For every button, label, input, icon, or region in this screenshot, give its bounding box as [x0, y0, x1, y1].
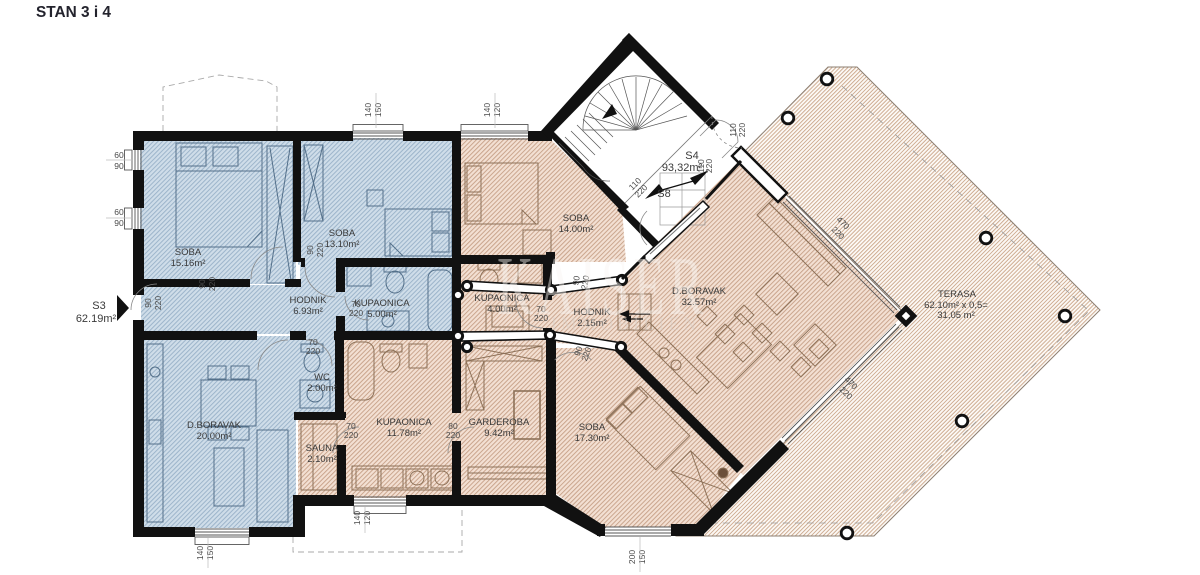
svg-text:GARDEROBA: GARDEROBA	[469, 417, 530, 428]
svg-text:STAN 3 i 4: STAN 3 i 4	[36, 4, 111, 21]
svg-text:62.19m²: 62.19m²	[76, 313, 117, 325]
svg-text:15.16m²: 15.16m²	[171, 258, 206, 269]
svg-text:90: 90	[197, 279, 207, 289]
svg-text:220: 220	[153, 296, 163, 310]
svg-text:140: 140	[352, 511, 362, 525]
svg-text:9.42m²: 9.42m²	[484, 428, 514, 439]
svg-text:220: 220	[207, 277, 217, 291]
svg-text:IMMOBILIEN: IMMOBILIEN	[551, 313, 700, 334]
svg-text:2.10m²: 2.10m²	[307, 454, 337, 465]
svg-text:90: 90	[305, 245, 315, 255]
svg-text:120: 120	[492, 103, 502, 117]
svg-text:5.00m²: 5.00m²	[367, 309, 397, 320]
svg-text:140: 140	[482, 103, 492, 117]
svg-text:220: 220	[446, 430, 460, 440]
svg-text:S8: S8	[657, 188, 670, 200]
svg-text:140: 140	[195, 546, 205, 560]
svg-text:220: 220	[306, 346, 320, 356]
svg-text:17.30m²: 17.30m²	[575, 433, 610, 444]
svg-text:60: 60	[114, 207, 124, 217]
svg-text:11.78m²: 11.78m²	[387, 428, 421, 439]
svg-text:90: 90	[114, 161, 124, 171]
svg-text:WC: WC	[314, 372, 330, 383]
svg-text:20.00m²: 20.00m²	[197, 431, 232, 442]
svg-text:SOBA: SOBA	[563, 213, 590, 224]
svg-text:HODNIK: HODNIK	[290, 295, 328, 306]
svg-text:200: 200	[627, 550, 637, 564]
svg-text:140: 140	[363, 103, 373, 117]
svg-text:31,05 m²: 31,05 m²	[937, 310, 975, 321]
svg-text:120: 120	[362, 511, 372, 525]
svg-text:KUPAONICA: KUPAONICA	[376, 417, 432, 428]
svg-text:SAUNA: SAUNA	[306, 443, 339, 454]
svg-text:220: 220	[737, 123, 747, 137]
svg-text:150: 150	[373, 103, 383, 117]
svg-text:SOBA: SOBA	[579, 422, 606, 433]
svg-text:2.00m²: 2.00m²	[307, 383, 337, 394]
svg-text:SOBA: SOBA	[329, 228, 356, 239]
svg-text:6.93m²: 6.93m²	[293, 306, 323, 317]
svg-text:S3: S3	[92, 300, 105, 312]
svg-text:14.00m²: 14.00m²	[559, 224, 594, 235]
svg-text:90: 90	[114, 218, 124, 228]
svg-text:D.BORAVAK: D.BORAVAK	[187, 420, 242, 431]
svg-text:150: 150	[205, 546, 215, 560]
svg-text:SOBA: SOBA	[175, 247, 202, 258]
svg-text:220: 220	[349, 308, 363, 318]
svg-text:TERASA: TERASA	[938, 289, 977, 300]
svg-text:60: 60	[114, 150, 124, 160]
svg-text:13.10m²: 13.10m²	[325, 239, 360, 250]
svg-text:90: 90	[143, 298, 153, 308]
svg-text:150: 150	[637, 550, 647, 564]
svg-text:220: 220	[315, 243, 325, 257]
svg-text:220: 220	[344, 430, 358, 440]
svg-text:220: 220	[704, 159, 714, 173]
